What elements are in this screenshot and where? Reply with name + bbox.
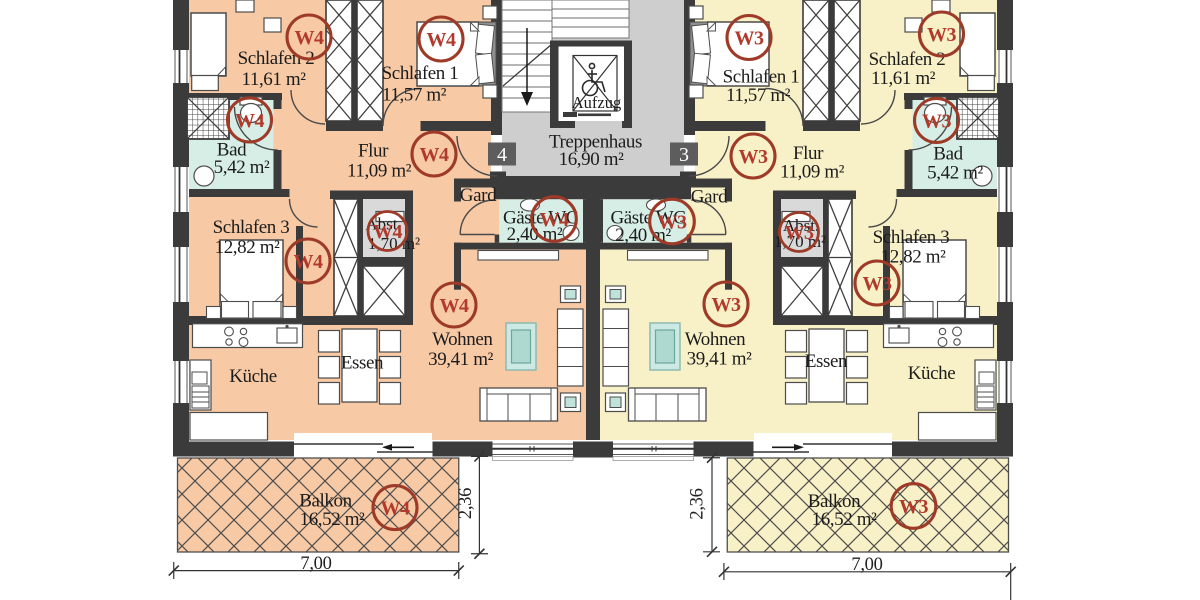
svg-text:W4: W4 (420, 144, 450, 166)
svg-text:W3: W3 (927, 24, 957, 46)
svg-text:7,00: 7,00 (300, 554, 331, 574)
svg-text:Aufzug: Aufzug (572, 93, 621, 112)
svg-text:Schlafen 3: Schlafen 3 (873, 227, 950, 248)
svg-text:11,57 m²: 11,57 m² (382, 85, 447, 106)
svg-text:16,90 m²: 16,90 m² (559, 149, 624, 170)
svg-text:W4: W4 (373, 221, 403, 243)
svg-text:16,52 m²: 16,52 m² (300, 509, 365, 530)
svg-text:Schlafen 1: Schlafen 1 (382, 63, 459, 84)
svg-text:W3: W3 (712, 294, 742, 316)
svg-text:Flur: Flur (358, 141, 389, 162)
svg-text:W4: W4 (381, 497, 411, 519)
svg-text:W4: W4 (235, 110, 265, 132)
svg-text:W4: W4 (295, 27, 325, 49)
svg-text:39,41 m²: 39,41 m² (687, 348, 752, 369)
svg-text:4: 4 (497, 144, 507, 166)
svg-text:W4: W4 (440, 295, 470, 317)
svg-text:11,61 m²: 11,61 m² (241, 69, 306, 90)
svg-text:11,09 m²: 11,09 m² (347, 161, 412, 182)
svg-text:Schlafen 2: Schlafen 2 (869, 49, 946, 70)
svg-text:W3: W3 (899, 496, 929, 518)
svg-text:11,61 m²: 11,61 m² (871, 68, 936, 89)
svg-text:2,36: 2,36 (456, 488, 476, 519)
svg-text:39,41 m²: 39,41 m² (428, 349, 493, 370)
svg-text:Wohnen: Wohnen (685, 329, 746, 350)
svg-text:Bad: Bad (933, 144, 963, 165)
svg-text:Wohnen: Wohnen (432, 329, 493, 350)
svg-text:W3: W3 (785, 222, 815, 244)
svg-text:11,09 m²: 11,09 m² (780, 162, 845, 183)
svg-text:11,57 m²: 11,57 m² (726, 85, 791, 106)
svg-text:7,00: 7,00 (851, 555, 882, 575)
svg-text:Essen: Essen (805, 351, 848, 372)
svg-text:W4: W4 (427, 29, 457, 51)
svg-text:2,36: 2,36 (688, 488, 708, 519)
svg-text:16,52 m²: 16,52 m² (812, 509, 877, 530)
svg-text:W4: W4 (294, 251, 324, 273)
svg-text:W4: W4 (540, 209, 570, 231)
svg-text:Gard: Gard (460, 185, 497, 206)
svg-text:W3: W3 (863, 273, 893, 295)
svg-text:Schlafen 3: Schlafen 3 (213, 217, 290, 238)
svg-text:W3: W3 (735, 27, 765, 49)
svg-text:Küche: Küche (229, 366, 277, 387)
svg-text:W3: W3 (922, 110, 952, 132)
svg-text:W3: W3 (739, 146, 769, 168)
svg-text:Essen: Essen (341, 353, 384, 374)
svg-text:5,42 m²: 5,42 m² (214, 157, 270, 178)
svg-text:W3: W3 (658, 211, 688, 233)
svg-text:Gard: Gard (691, 187, 728, 208)
svg-text:5,42 m²: 5,42 m² (927, 163, 983, 184)
svg-text:12,82 m²: 12,82 m² (215, 237, 280, 258)
svg-text:Küche: Küche (908, 363, 956, 384)
svg-text:3: 3 (679, 144, 689, 166)
